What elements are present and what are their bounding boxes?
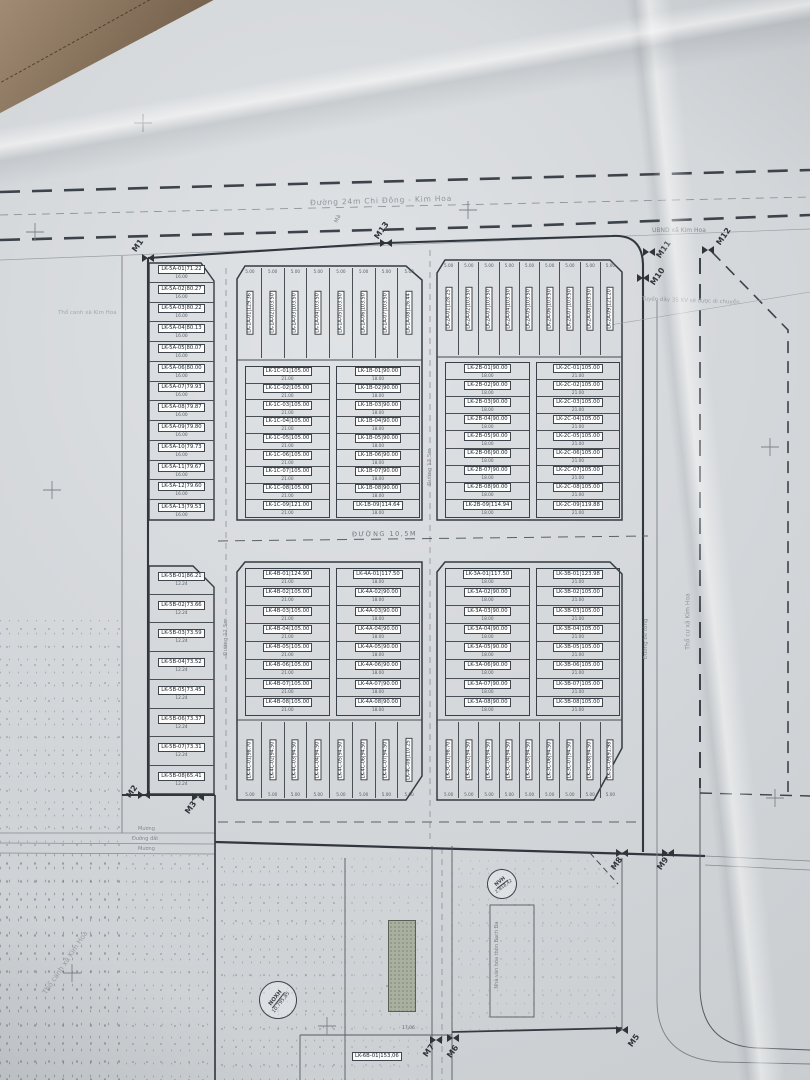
lot-LK-1B-09: LK-1B-09|114.6418.00 [337,500,419,517]
lot-LK-5A-05: LK-5A-05|80.0716.00 [149,342,214,362]
lot-dim: 21.00 [281,461,293,466]
lot-LK-1C-01: LK-1C-01|105.0021.00 [246,367,329,384]
lot-label: LK-1C-07|105.00 [263,467,313,476]
lot-dim: 5.00 [245,269,254,274]
registration-cross [43,481,61,499]
lot-label: LK-4A-08|90.00 [355,698,401,707]
lot-dim: 18.00 [372,427,384,432]
lot-dim: 21.00 [572,708,584,713]
survey-marker-symbol-M13 [380,239,392,247]
lot-label: LK-2A-06|103.50 [546,287,553,331]
lot-label: LK-4B-06|105.00 [263,661,313,670]
lot-LK-3A-07: LK-3A-07|90.0018.00 [446,679,529,697]
lot-LK-2A-06: LK-2A-06|103.505.00 [540,262,560,355]
lot-dim-lk6b: 17.06 [402,1026,415,1031]
lot-label: LK-3A-08|90.00 [464,698,510,707]
lot-label: LK-5B-04|73.52 [158,658,204,667]
lot-dim: 21.00 [572,617,584,622]
lot-label: LK-5A-05|80.07 [158,344,204,353]
lot-dim: 21.00 [572,459,584,464]
lot-dim: 21.00 [572,374,584,379]
lot-label: LK-2B-05|90.00 [464,432,510,441]
block-lk1a: LK-1A-01|129.365.00LK-1A-02|103.505.00LK… [239,268,420,358]
lot-label: LK-4A-03|90.00 [355,607,401,616]
lot-LK-3B-04: LK-3B-04|105.0021.00 [537,624,619,642]
lot-label: LK-5A-13|79.53 [158,503,204,512]
lot-LK-2C-03: LK-2C-03|105.0021.00 [537,397,619,414]
lot-dim: 5.00 [484,792,493,797]
lot-label: LK-3B-01|123.98 [553,570,603,579]
lot-LK-4B-04: LK-4B-04|105.0021.00 [246,624,329,642]
lot-dim: 18.00 [481,391,493,396]
lot-dim: 5.00 [505,263,514,268]
lot-label: LK-1B-03|90.00 [355,401,401,410]
lot-label: LK-5A-08|79.87 [158,403,204,412]
lot-LK-3B-08: LK-3B-08|105.0021.00 [537,697,619,715]
lot-LK-1C-08: LK-1C-08|105.0021.00 [246,484,329,501]
lot-dim: 12.24 [175,639,187,644]
lot-LK-1A-07: LK-1A-07|103.505.00 [376,268,399,358]
lot-LK-5A-07: LK-5A-07|79.9316.00 [149,382,214,402]
lot-LK-5A-10: LK-5A-10|79.7316.00 [149,441,214,461]
lot-LK-5B-02: LK-5B-02|73.6612.24 [149,595,214,624]
ubnd-label: UBND xã Kim Hoa [652,227,706,234]
lot-label: LK-1C-06|105.00 [263,451,313,460]
lot-label: LK-2C-06|105.00 [553,449,603,458]
lot-dim: 16.00 [175,275,187,280]
lot-dim: 21.00 [281,494,293,499]
lot-LK-4C-01: LK-4C-01|98.705.00 [239,722,262,798]
lot-dim: 12.24 [175,611,187,616]
lot-dim: 18.00 [481,708,493,713]
lot-label: LK-5B-07|73.31 [158,743,204,752]
lot-dim: 5.00 [359,269,368,274]
lot-label: LK-1B-07|90.00 [355,467,401,476]
lot-label: LK-1B-08|90.00 [355,484,401,493]
lot-dim: 18.00 [481,511,493,516]
lot-label: LK-5B-05|73.45 [158,686,204,695]
registration-cross [134,114,152,132]
lot-label: LK-2C-08|105.00 [553,483,603,492]
lot-LK-1C-07: LK-1C-07|105.0021.00 [246,467,329,484]
lot-label: LK-3A-04|90.00 [464,625,510,634]
lot-LK-5B-04: LK-5B-04|73.5212.24 [149,652,214,681]
lot-dim: 21.00 [572,493,584,498]
lot-label: LK-5B-01|86.21 [158,572,204,581]
lot-label: LK-5A-01|71.22 [158,265,204,274]
lot-label: LK-1B-01|90.00 [355,367,401,376]
lot-label: LK-1B-09|114.64 [353,501,403,510]
lot-dim: 5.00 [336,792,345,797]
lot-dim: 18.00 [481,653,493,658]
canal-label-1: Mương [138,826,155,832]
lot-dim: 21.00 [572,653,584,658]
lot-label: LK-3B-06|105.00 [553,661,603,670]
lot-LK-1A-08: LK-1A-08|126.445.00 [398,268,420,358]
lot-LK-2C-02: LK-2C-02|105.0021.00 [537,380,619,397]
lot-dim: 5.00 [268,792,277,797]
lot-label: LK-2B-06|90.00 [464,449,510,458]
lot-LK-2C-09: LK-2C-09|119.8821.00 [537,500,619,517]
lot-dim: 18.00 [372,494,384,499]
lot-label: LK-1C-05|105.00 [263,434,313,443]
lot-label: LK-1A-08|126.44 [406,291,413,335]
lot-LK-2C-08: LK-2C-08|105.0021.00 [537,483,619,500]
concrete-road-label: Đường bê tông [643,579,649,699]
lot-label: LK-5A-06|80.00 [158,364,204,373]
lot-dim: 21.00 [572,671,584,676]
lot-LK-3A-06: LK-3A-06|90.0018.00 [446,660,529,678]
lot-dim: 21.00 [572,598,584,603]
lot-dim: 5.00 [525,792,534,797]
lot-LK-4B-06: LK-4B-06|105.0021.00 [246,660,329,678]
lot-LK-3B-07: LK-3B-07|105.0021.00 [537,679,619,697]
lot-LK-3B-05: LK-3B-05|105.0021.00 [537,642,619,660]
lot-label: LK-1A-07|103.50 [383,291,390,335]
lot-dim: 5.00 [382,792,391,797]
lot-LK-2C-06: LK-2C-06|105.0021.00 [537,449,619,466]
lot-dim: 16.00 [175,374,187,379]
lot-dim: 18.00 [481,598,493,603]
lot-dim: 21.00 [281,598,293,603]
survey-marker-symbol-M12 [702,246,714,254]
lot-dim: 18.00 [481,459,493,464]
lot-label: LK-1C-02|105.00 [263,384,313,393]
lot-label: LK-4C-01|98.70 [246,740,253,781]
lot-LK-2C-05: LK-2C-05|105.0021.00 [537,431,619,448]
lot-dim: 5.00 [268,269,277,274]
lot-dim: 21.00 [281,511,293,516]
cadastral-plan-photo: Đường 24m Chi Đông - Kim Hoa UBND xã Kim… [0,0,810,1080]
lot-LK-2C-01: LK-2C-01|105.0021.00 [537,363,619,380]
lot-LK-1B-05: LK-1B-05|90.0018.00 [337,434,419,451]
lot-dim: 5.00 [313,269,322,274]
lot-dim: 12.24 [175,725,187,730]
lot-label: LK-1B-04|90.00 [355,417,401,426]
lot-LK-1A-02: LK-1A-02|103.505.00 [262,268,285,358]
lot-LK-5A-12: LK-5A-12|79.6016.00 [149,480,214,500]
lot-dim: 12.24 [175,782,187,787]
lot-LK-5A-02: LK-5A-02|80.2716.00 [149,283,214,303]
lot-label: LK-1A-01|129.36 [246,291,253,335]
lot-LK-1C-03: LK-1C-03|105.0021.00 [246,400,329,417]
lot-LK-4C-08: LK-4C-08|110.255.00 [398,722,420,798]
lot-LK-2A-03: LK-2A-03|103.505.00 [479,262,499,355]
lot-LK-5B-08: LK-5B-08|65.4112.24 [149,766,214,795]
lot-label: LK-3C-07|94.50 [566,740,573,781]
lot-LK-5A-03: LK-5A-03|80.2216.00 [149,303,214,323]
lot-LK-3B-02: LK-3B-02|105.0021.00 [537,587,619,605]
lot-LK-1A-06: LK-1A-06|103.505.00 [353,268,376,358]
lot-dim: 18.00 [481,374,493,379]
lot-LK-5A-04: LK-5A-04|80.1316.00 [149,322,214,342]
lot-label: LK-2C-04|105.00 [553,415,603,424]
lot-dim: 18.00 [372,671,384,676]
lot-dim: 5.00 [359,792,368,797]
lot-dim: 21.00 [572,425,584,430]
lot-dim: 18.00 [481,476,493,481]
lot-dim: 18.00 [481,425,493,430]
lot-LK-3A-02: LK-3A-02|90.0018.00 [446,587,529,605]
lot-label: LK-2A-01|128.25 [445,287,452,331]
lot-dim: 5.00 [444,263,453,268]
plan-linework [0,0,810,1080]
lot-dim: 5.00 [565,263,574,268]
registration-cross [459,201,477,219]
lot-label: LK-2C-03|105.00 [553,398,603,407]
lot-label: LK-2C-09|119.88 [553,501,603,510]
lot-LK-1B-04: LK-1B-04|90.0018.00 [337,417,419,434]
lot-label: LK-5A-07|79.93 [158,383,204,392]
lot-label: LK-2B-09|114.94 [463,501,513,510]
lot-dim: 21.00 [572,391,584,396]
lot-label: LK-1B-02|90.00 [355,384,401,393]
lot-label: LK-1A-06|103.50 [360,291,367,335]
block-lk1b: LK-1B-01|90.0018.00LK-1B-02|90.0018.00LK… [336,366,420,518]
lot-dim: 16.00 [175,413,187,418]
lot-LK-2B-03: LK-2B-03|90.0018.00 [446,397,529,414]
lot-LK-1A-04: LK-1A-04|103.505.00 [307,268,330,358]
block-lk4b: LK-4B-01|124.9021.00LK-4B-02|105.0021.00… [245,568,330,716]
lot-LK-2A-07: LK-2A-07|103.505.00 [560,262,580,355]
lot-label: LK-4B-01|124.90 [263,570,313,579]
survey-marker-symbol-M11 [643,248,655,256]
lot-LK-2C-07: LK-2C-07|105.0021.00 [537,466,619,483]
lot-label: LK-2B-02|90.00 [464,381,510,390]
lot-label: LK-1C-01|105.00 [263,367,313,376]
lot-dim: 18.00 [372,461,384,466]
lot-LK-5B-06: LK-5B-06|73.3712.24 [149,709,214,738]
lot-dim: 5.00 [585,263,594,268]
lot-dim: 5.00 [382,269,391,274]
lot-dim: 16.00 [175,393,187,398]
lot-dim: 18.00 [372,635,384,640]
lot-LK-5A-06: LK-5A-06|80.0016.00 [149,362,214,382]
lot-LK-3A-03: LK-3A-03|90.0018.00 [446,606,529,624]
lot-dim: 18.00 [481,493,493,498]
lot-label: LK-2C-05|105.00 [553,432,603,441]
lot-LK-1A-01: LK-1A-01|129.365.00 [239,268,262,358]
lot-LK-1A-05: LK-1A-05|103.505.00 [330,268,353,358]
block-lk2c: LK-2C-01|105.0021.00LK-2C-02|105.0021.00… [536,362,620,518]
lot-label: LK-2A-05|103.50 [526,287,533,331]
lot-dim: 5.00 [444,792,453,797]
lot-label: LK-4C-02|94.50 [269,740,276,781]
lot-LK-2B-05: LK-2B-05|90.0018.00 [446,431,529,448]
lot-LK-1C-05: LK-1C-05|105.0021.00 [246,434,329,451]
lot-LK-3C-04: LK-3C-04|94.505.00 [500,722,520,798]
lot-LK-1B-02: LK-1B-02|90.0018.00 [337,384,419,401]
lot-label: LK-3C-04|94.50 [506,740,513,781]
lot-label: LK-3C-09|91.98 [607,740,614,781]
lot-dim: 16.00 [175,453,187,458]
lot-dim: 5.00 [313,792,322,797]
lot-label: LK-3B-04|105.00 [553,625,603,634]
lot-label: LK-2A-03|103.50 [486,287,493,331]
lot-dim: 21.00 [572,442,584,447]
lot-LK-3C-01: LK-3C-01|98.705.00 [439,722,459,798]
block-lk4a: LK-4A-01|117.5018.00LK-4A-02|90.0018.00L… [336,568,420,716]
lot-LK-4A-02: LK-4A-02|90.0018.00 [337,587,419,605]
lot-LK-4A-06: LK-4A-06|90.0018.00 [337,660,419,678]
lot-LK-2A-05: LK-2A-05|103.505.00 [520,262,540,355]
lot-LK-1B-07: LK-1B-07|90.0018.00 [337,467,419,484]
lot-LK-2A-09: LK-2A-09|121.205.00 [601,262,620,355]
lot-LK-4C-05: LK-4C-05|94.505.00 [330,722,353,798]
lot-dim: 18.00 [372,690,384,695]
lot-dim: 5.00 [291,269,300,274]
lot-dim: 16.00 [175,314,187,319]
lot-label: LK-2A-08|103.50 [587,287,594,331]
lot-LK-1C-09: LK-1C-09|121.0021.00 [246,500,329,517]
lot-label: LK-4C-05|94.50 [337,740,344,781]
lot-dim: 18.00 [372,511,384,516]
lot-dim: 21.00 [572,476,584,481]
lot-dim: 18.00 [372,580,384,585]
inner-road-left-label: Đường 11,5m [223,577,229,697]
lot-LK-2A-04: LK-2A-04|103.505.00 [500,262,520,355]
lot-label: LK-2C-01|105.00 [553,364,603,373]
lot-LK-4A-04: LK-4A-04|90.0018.00 [337,624,419,642]
dirt-road-label: Đường đất [132,836,158,842]
lot-label: LK-3C-06|94.50 [546,740,553,781]
lot-dim: 5.00 [336,269,345,274]
lot-label: LK-4B-02|105.00 [263,588,313,597]
lot-dim: 18.00 [481,617,493,622]
lot-label: LK-2B-07|90.00 [464,466,510,475]
lot-label: LK-4C-06|94.50 [360,740,367,781]
lot-dim: 21.00 [281,653,293,658]
lot-dim: 12.24 [175,582,187,587]
lot-label: LK-4B-05|105.00 [263,643,313,652]
lot-dim: 18.00 [481,690,493,695]
lot-dim: 5.00 [464,263,473,268]
lot-label: LK-3A-06|90.00 [464,661,510,670]
lot-LK-3A-08: LK-3A-08|90.0018.00 [446,697,529,715]
lot-dim: 5.00 [525,263,534,268]
lot-LK-4A-07: LK-4A-07|90.0018.00 [337,679,419,697]
lot-dim: 18.00 [372,617,384,622]
lot-dim: 21.00 [281,617,293,622]
lot-label: LK-1C-08|105.00 [263,484,313,493]
lot-dim: 18.00 [372,477,384,482]
lot-LK-5A-13: LK-5A-13|79.5316.00 [149,500,214,520]
lot-dim: 16.00 [175,433,187,438]
lot-label: LK-3A-01|117.50 [463,570,513,579]
lot-LK-3A-04: LK-3A-04|90.0018.00 [446,624,529,642]
lot-LK-3B-06: LK-3B-06|105.0021.00 [537,660,619,678]
lot-label: LK-4C-03|94.50 [292,740,299,781]
lot-dim: 16.00 [175,295,187,300]
lot-label: LK-3B-05|105.00 [553,643,603,652]
lot-dim: 12.24 [175,753,187,758]
lot-dim: 18.00 [481,442,493,447]
lot-LK-2A-08: LK-2A-08|103.505.00 [581,262,601,355]
lot-LK-3A-05: LK-3A-05|90.0018.00 [446,642,529,660]
lot-LK-2B-07: LK-2B-07|90.0018.00 [446,466,529,483]
lot-dim: 21.00 [281,635,293,640]
lot-LK-1C-02: LK-1C-02|105.0021.00 [246,384,329,401]
lot-label: LK-4A-04|90.00 [355,625,401,634]
lot-dim: 18.00 [372,411,384,416]
lot-label: LK-2B-04|90.00 [464,415,510,424]
lot-LK-3B-01: LK-3B-01|123.9821.00 [537,569,619,587]
lot-label: LK-3C-01|98.70 [445,740,452,781]
lot-label: LK-5A-02|80.27 [158,285,204,294]
lot-label: LK-4B-03|105.00 [263,607,313,616]
lot-dim: 16.00 [175,513,187,518]
lot-label: LK-1A-04|103.50 [315,291,322,335]
lot-dim: 5.00 [484,263,493,268]
lot-LK-4C-04: LK-4C-04|94.505.00 [307,722,330,798]
lot-dim: 21.00 [281,708,293,713]
lot-dim: 5.00 [505,792,514,797]
lot-label: LK-1C-09|121.00 [263,501,313,510]
left-field-note: Thổ canh xã Kim Hoa [58,310,117,316]
lot-dim: 21.00 [572,635,584,640]
lot-LK-5A-11: LK-5A-11|79.6716.00 [149,461,214,481]
lot-label: LK-1B-06|90.00 [355,451,401,460]
lot-LK-4A-05: LK-4A-05|90.0018.00 [337,642,419,660]
lot-LK-1B-06: LK-1B-06|90.0018.00 [337,450,419,467]
lot-LK-2B-06: LK-2B-06|90.0018.00 [446,449,529,466]
lot-label: LK-4A-01|117.50 [353,570,403,579]
lot-label: LK-1B-05|90.00 [355,434,401,443]
lot-dim: 21.00 [281,580,293,585]
lot-dim: 5.00 [545,263,554,268]
lot-label: LK-5B-08|65.41 [158,772,204,781]
lot-LK-5A-08: LK-5A-08|79.8716.00 [149,401,214,421]
lot-dim: 5.00 [404,269,413,274]
lot-label: LK-4C-08|110.25 [406,738,413,782]
lot-label: LK-3C-08|94.50 [587,740,594,781]
lot-dim: 21.00 [281,444,293,449]
lot-label: LK-3A-05|90.00 [464,643,510,652]
lot-LK-4A-08: LK-4A-08|90.0018.00 [337,697,419,715]
block-lk5a: LK-5A-01|71.2216.00LK-5A-02|80.2716.00LK… [149,263,214,520]
lot-dim: 21.00 [572,511,584,516]
lot-label: LK-3B-03|105.00 [553,607,603,616]
lot-dim: 21.00 [572,580,584,585]
lot-label: LK-5A-03|80.22 [158,304,204,313]
lot-label: LK-4A-05|90.00 [355,643,401,652]
lot-dim: 18.00 [481,408,493,413]
lot-LK-4B-07: LK-4B-07|105.0021.00 [246,679,329,697]
lot-label: LK-3C-05|94.50 [526,740,533,781]
lot-label: LK-1A-02|103.50 [269,291,276,335]
lot-LK-4B-01: LK-4B-01|124.9021.00 [246,569,329,587]
lot-LK-4B-02: LK-4B-02|105.0021.00 [246,587,329,605]
community-house-label: Nhà văn hóa thôn Bạch Đa [494,895,500,1015]
lot-LK-4C-07: LK-4C-07|94.505.00 [376,722,399,798]
registration-cross [766,789,784,807]
lot-label: LK-5B-06|73.37 [158,715,204,724]
lot-dim: 21.00 [281,377,293,382]
registration-cross [318,1017,336,1035]
planting-strip [388,920,416,1012]
lot-dim: 18.00 [372,653,384,658]
block-lk3b: LK-3B-01|123.9821.00LK-3B-02|105.0021.00… [536,568,620,716]
lot-dim: 5.00 [545,792,554,797]
lot-label: LK-4A-07|90.00 [355,680,401,689]
lot-dim: 21.00 [572,690,584,695]
lot-label: LK-2A-04|103.50 [506,287,513,331]
lot-dim: 21.00 [281,477,293,482]
lot-dim: 16.00 [175,354,187,359]
lot-LK-2C-04: LK-2C-04|105.0021.00 [537,414,619,431]
lot-dim: 18.00 [372,598,384,603]
lot-dim: 16.00 [175,473,187,478]
